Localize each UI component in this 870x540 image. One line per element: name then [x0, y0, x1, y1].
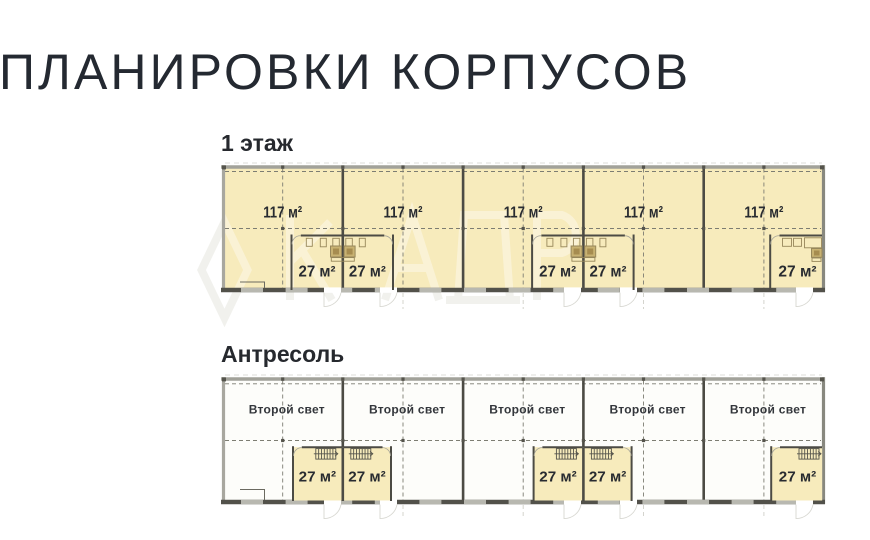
- svg-text:27 м²: 27 м²: [348, 469, 386, 486]
- svg-text:27 м²: 27 м²: [590, 264, 627, 281]
- svg-text:Второй свет: Второй свет: [730, 403, 806, 417]
- svg-text:117 м²: 117 м²: [504, 205, 543, 222]
- svg-text:27 м²: 27 м²: [779, 469, 817, 486]
- svg-text:117 м²: 117 м²: [744, 205, 783, 222]
- svg-text:27 м²: 27 м²: [539, 264, 576, 281]
- svg-text:Второй свет: Второй свет: [489, 403, 565, 417]
- svg-text:27 м²: 27 м²: [349, 264, 386, 281]
- svg-text:27 м²: 27 м²: [299, 264, 336, 281]
- svg-text:Антресоль: Антресоль: [221, 341, 344, 367]
- svg-text:Второй свет: Второй свет: [249, 403, 325, 417]
- svg-text:27 м²: 27 м²: [778, 264, 816, 281]
- svg-text:27 м²: 27 м²: [539, 469, 577, 486]
- svg-text:1 этаж: 1 этаж: [221, 130, 294, 156]
- svg-text:117 м²: 117 м²: [624, 205, 663, 222]
- svg-text:Второй свет: Второй свет: [369, 403, 445, 417]
- svg-text:117 м²: 117 м²: [263, 205, 302, 222]
- svg-text:27 м²: 27 м²: [299, 469, 337, 486]
- svg-text:27 м²: 27 м²: [589, 469, 627, 486]
- svg-text:ПЛАНИРОВКИ КОРПУСОВ: ПЛАНИРОВКИ КОРПУСОВ: [0, 44, 691, 100]
- svg-text:117 м²: 117 м²: [384, 205, 423, 222]
- svg-text:Второй свет: Второй свет: [610, 403, 686, 417]
